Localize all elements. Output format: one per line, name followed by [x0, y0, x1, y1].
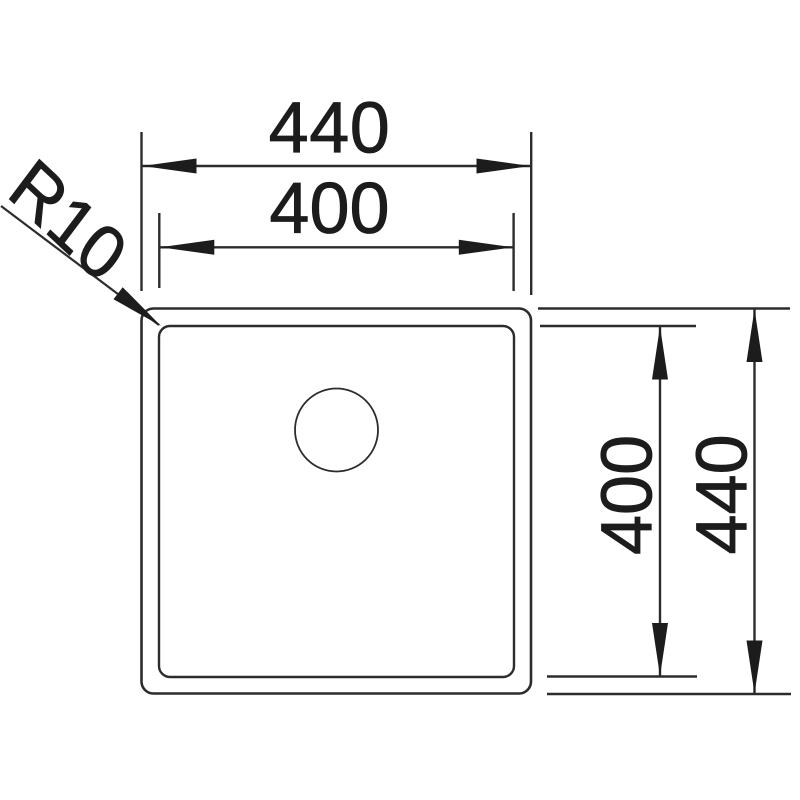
svg-text:400: 400	[588, 435, 668, 555]
svg-text:440: 440	[683, 434, 763, 554]
svg-text:400: 400	[269, 169, 389, 249]
svg-text:440: 440	[269, 89, 391, 169]
